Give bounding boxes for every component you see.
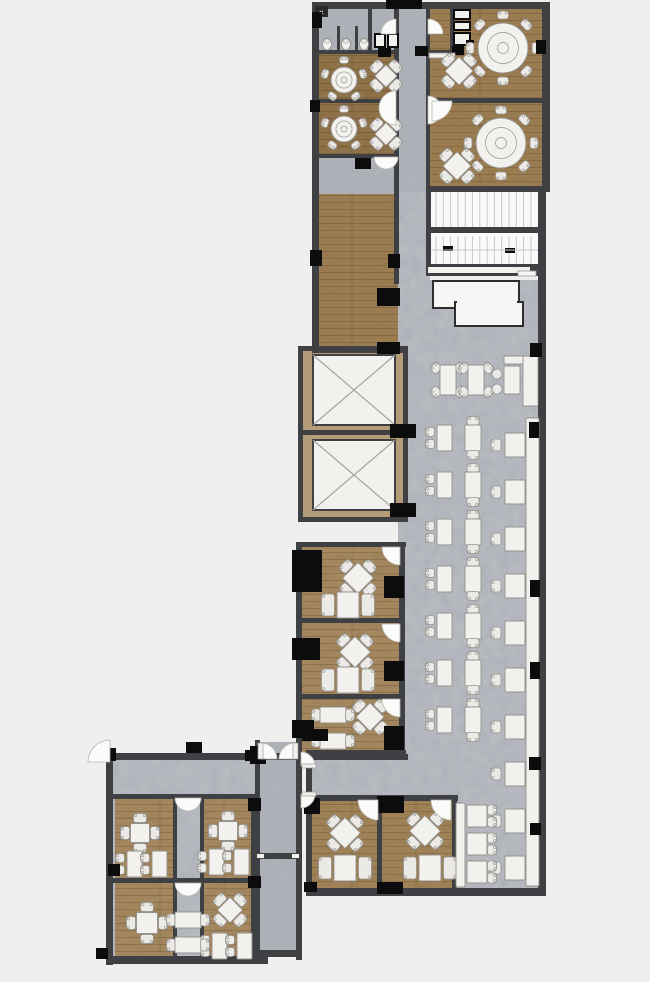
floor-plan-canvas: « [0,0,650,982]
floor-plan: « [0,0,650,982]
